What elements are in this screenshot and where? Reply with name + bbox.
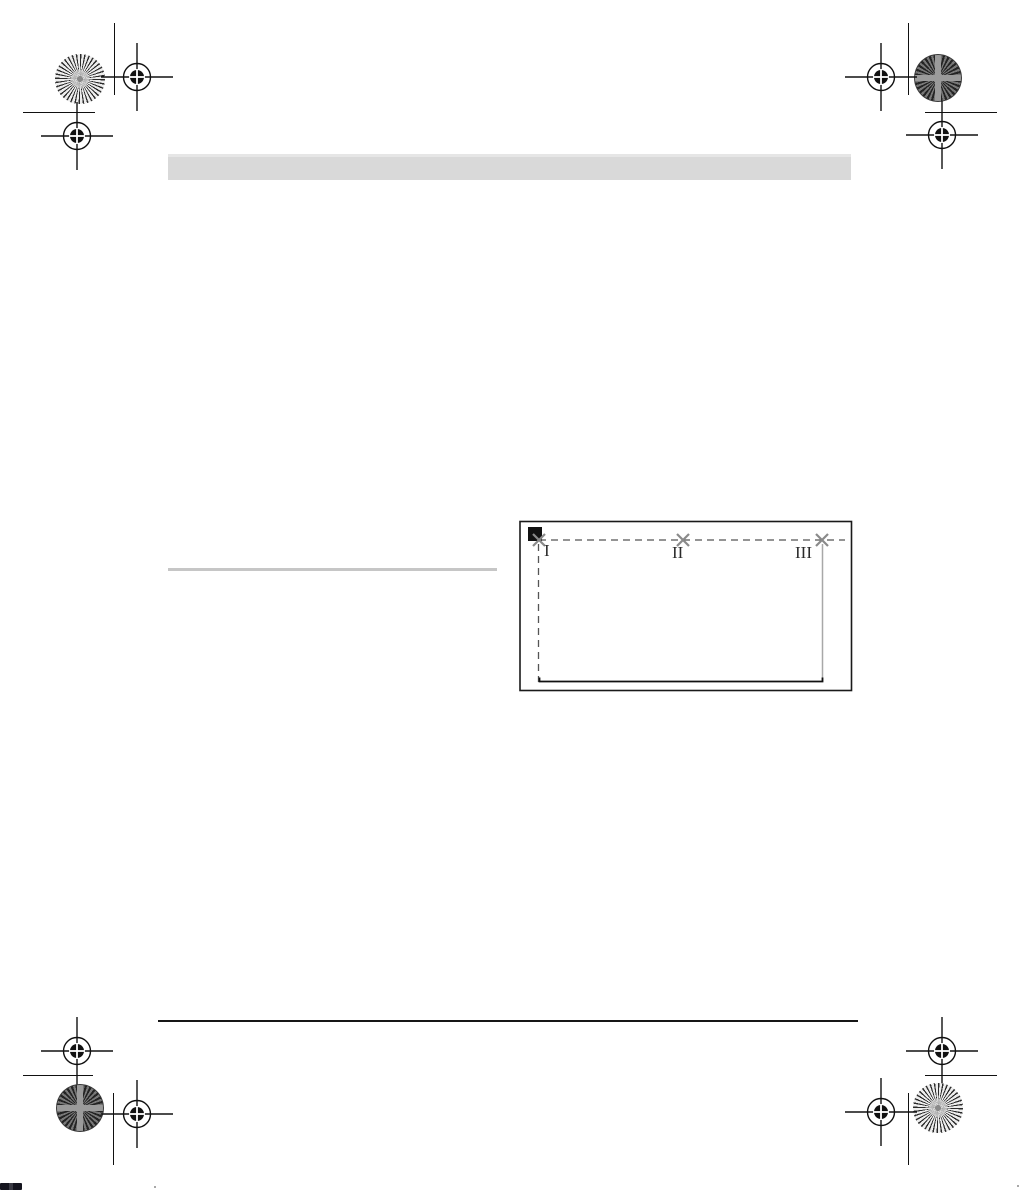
section-divider-rule <box>168 568 497 571</box>
page-edge-dot <box>154 1186 156 1188</box>
marker-label-1: I <box>544 542 550 559</box>
crop-mark <box>925 1075 997 1077</box>
footer-rule <box>158 1020 858 1022</box>
page-edge-dot <box>1017 1185 1019 1187</box>
marker-label-3: III <box>795 544 812 561</box>
registration-mark-icon <box>97 1074 177 1154</box>
registration-mark-icon <box>841 1072 921 1152</box>
printed-manual-page: I II III <box>0 0 1021 1191</box>
chapter-header-bar <box>168 154 851 180</box>
registration-mark-icon <box>37 96 117 176</box>
crop-mark <box>23 1075 93 1077</box>
page-edge-artifact <box>0 1183 22 1190</box>
registration-mark-icon <box>902 95 982 175</box>
marker-label-2: II <box>672 544 683 561</box>
